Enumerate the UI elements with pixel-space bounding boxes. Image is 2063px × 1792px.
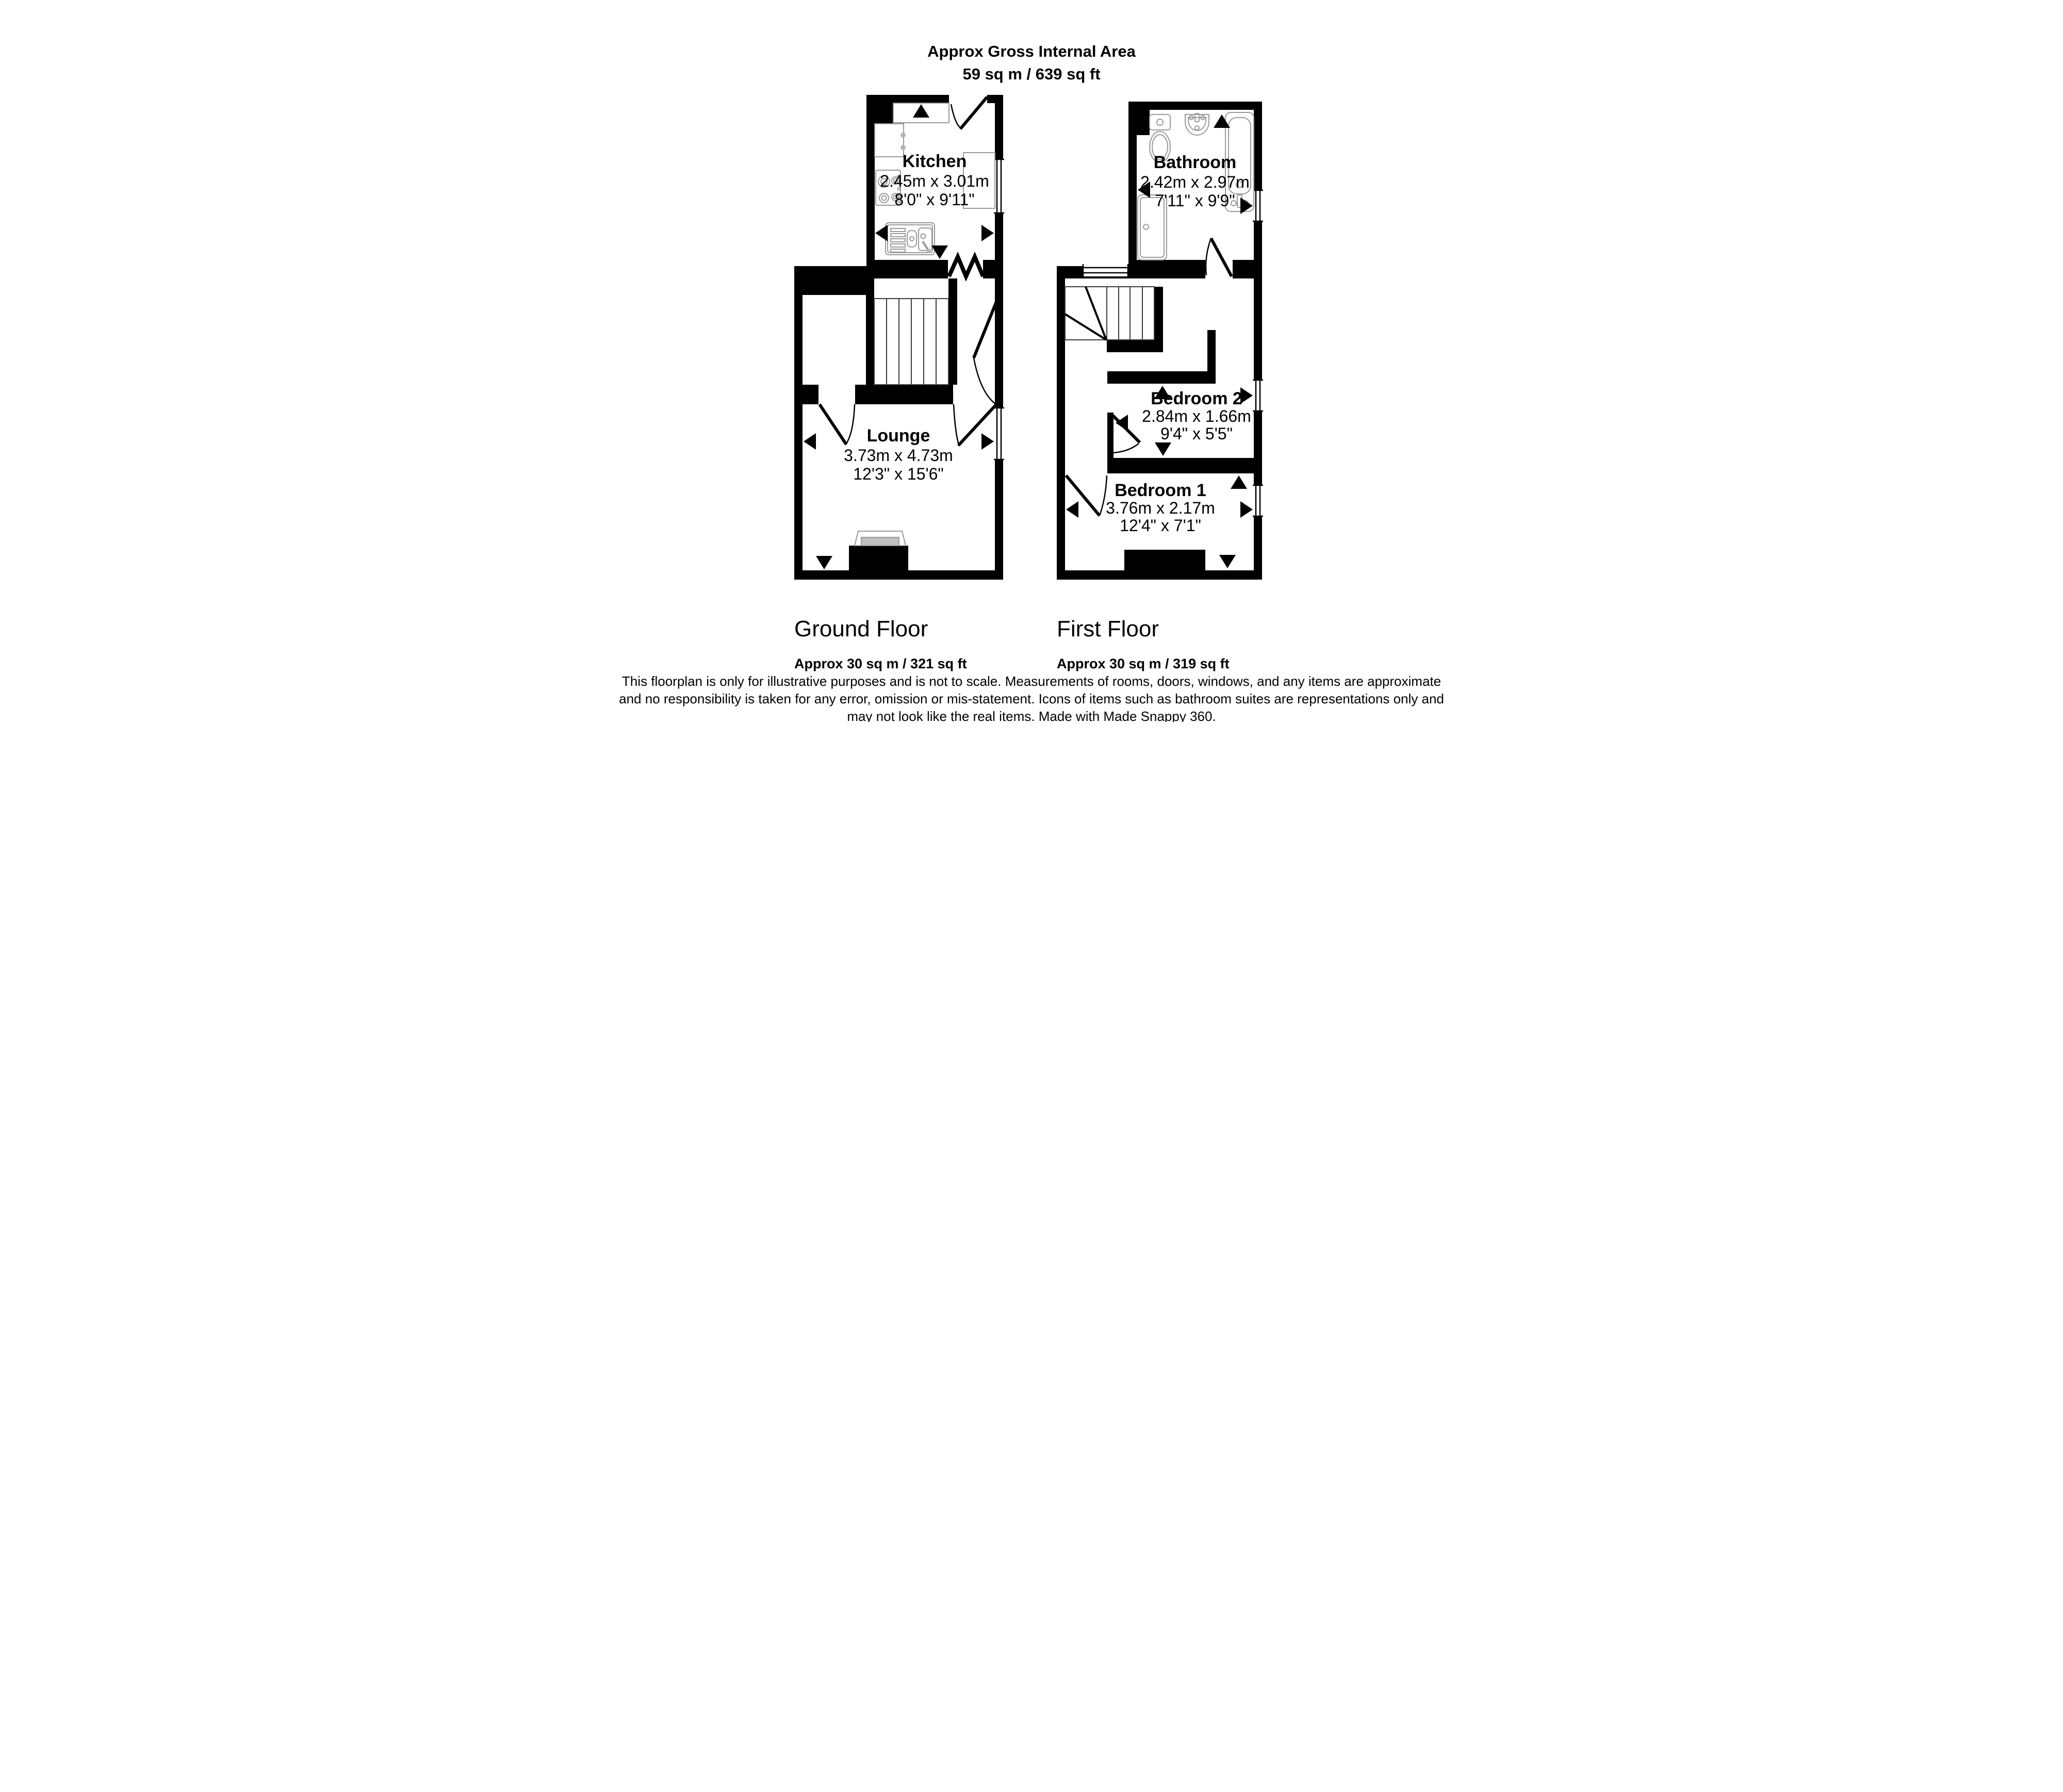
floorplan-drawing: Approx Gross Internal Area 59 sq m / 639… [619, 0, 1444, 722]
basin-icon [1185, 113, 1209, 135]
kitchen-arrow-right-icon [981, 225, 994, 241]
bedroom1-label: Bedroom 1 3.76m x 2.17m 12'4" x 7'1" [1106, 481, 1215, 535]
ground-floor-area: Approx 30 sq m / 321 sq ft [794, 656, 967, 671]
bedroom2-imperial: 9'4" x 5'5" [1160, 424, 1233, 443]
lounge-metric: 3.73m x 4.73m [844, 446, 953, 465]
disclaimer-line2: and no responsibility is taken for any e… [619, 691, 1444, 706]
bathroom-metric: 2.42m x 2.97m [1140, 173, 1250, 191]
page-title-area: 59 sq m / 639 sq ft [962, 65, 1100, 83]
kitchen-metric: 2.45m x 3.01m [880, 172, 989, 190]
bedroom1-metric: 3.76m x 2.17m [1106, 499, 1215, 517]
bedroom2-window [1253, 380, 1263, 412]
lounge-right-door-opening [953, 385, 995, 404]
bathroom-label: Bathroom 2.42m x 2.97m 7'11" x 9'9" [1140, 153, 1250, 210]
bedroom1-arrow-down-icon [1219, 555, 1236, 568]
first-floor-area: Approx 30 sq m / 319 sq ft [1057, 656, 1230, 671]
bedroom1-arrow-up-icon [1231, 475, 1247, 489]
bedroom1-arrow-right-icon [1240, 501, 1253, 518]
lounge-imperial: 12'3" x 15'6" [853, 465, 944, 483]
disclaimer-line1: This floorplan is only for illustrative … [622, 673, 1441, 689]
lounge-label: Lounge 3.73m x 4.73m 12'3" x 15'6" [844, 426, 953, 483]
bedroom1-imperial: 12'4" x 7'1" [1120, 516, 1201, 535]
first-floor-stairs [1065, 287, 1154, 340]
bedroom1-arrow-left-icon [1066, 501, 1078, 518]
bathroom-name: Bathroom [1154, 153, 1237, 172]
kitchen-cupboard [875, 124, 906, 157]
bedroom2-metric: 2.84m x 1.66m [1142, 407, 1251, 425]
bedroom2-arrow-down-icon [1155, 442, 1171, 456]
first-floor-plan: Bathroom 2.42m x 2.97m 7'11" x 9'9" Bedr… [1057, 102, 1263, 580]
lounge-name: Lounge [867, 426, 930, 446]
bedroom1-name: Bedroom 1 [1115, 481, 1206, 500]
kitchen-arrow-left-icon [875, 225, 888, 241]
disclaimer-line3: may not look like the real items. Made w… [847, 709, 1216, 722]
ground-floor-caption: Ground Floor Approx 30 sq m / 321 sq ft [794, 616, 967, 671]
bedroom2-name: Bedroom 2 [1151, 389, 1242, 408]
lounge-arrow-left-icon [804, 433, 816, 450]
bathroom-imperial: 7'11" x 9'9" [1155, 191, 1235, 210]
ground-floor-plan: Kitchen 2.45m x 3.01m 8'0" x 9'11" Loung… [794, 95, 1004, 580]
disclaimer: This floorplan is only for illustrative … [619, 673, 1444, 722]
lounge-left-door [820, 404, 855, 445]
first-floor-caption: First Floor Approx 30 sq m / 319 sq ft [1057, 616, 1230, 671]
bedroom2-top-wall [1107, 371, 1216, 384]
stairs-window [1083, 264, 1128, 276]
kitchen-imperial: 8'0" x 9'11" [894, 190, 974, 209]
ground-stairs [874, 299, 948, 385]
ground-floor-label: Ground Floor [794, 616, 928, 642]
bedroom1-window [1253, 485, 1263, 517]
fireplace-hearth [855, 531, 906, 546]
lounge-arrow-down-icon [816, 556, 832, 569]
lounge-left-door-opening [818, 385, 855, 404]
page-title: Approx Gross Internal Area [927, 42, 1136, 60]
bedroom-divider-wall [1107, 458, 1254, 473]
bedroom1-door-opening [1065, 458, 1107, 473]
kitchen-name: Kitchen [903, 152, 967, 171]
bedroom2-left-wall [1107, 413, 1114, 458]
bedroom2-label: Bedroom 2 2.84m x 1.66m 9'4" x 5'5" [1142, 389, 1251, 443]
lounge-window [994, 407, 1004, 460]
sink-icon [886, 223, 935, 255]
lounge-chimney-breast [849, 546, 908, 570]
floorplan-page: Approx Gross Internal Area 59 sq m / 639… [619, 0, 1444, 722]
first-floor-label: First Floor [1057, 616, 1159, 642]
bedroom2-arrow-left-icon [1116, 415, 1128, 431]
lounge-arrow-right-icon [981, 433, 994, 450]
bedroom1-chimney-breast [1124, 550, 1205, 570]
